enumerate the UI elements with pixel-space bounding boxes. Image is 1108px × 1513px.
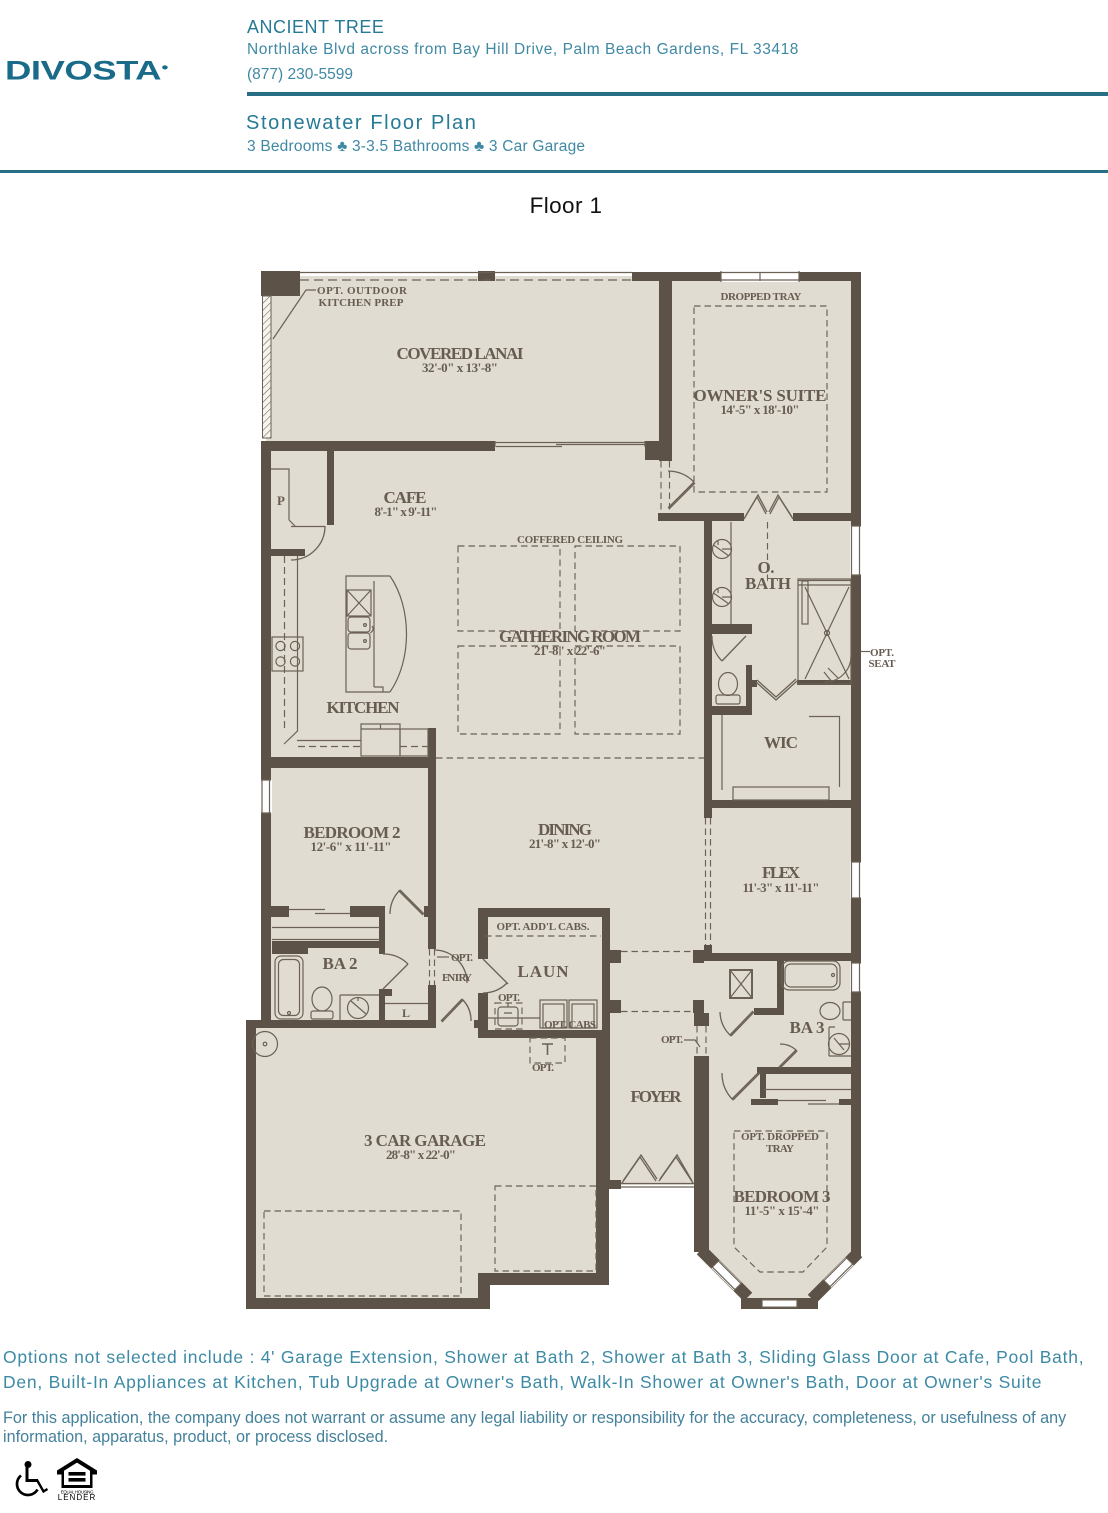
svg-text:FOYER: FOYER: [631, 1087, 683, 1106]
svg-text:21'-8" x 22'-6": 21'-8" x 22'-6": [534, 643, 606, 658]
svg-text:LENDER: LENDER: [58, 1493, 96, 1501]
svg-text:OPT. CABS: OPT. CABS: [544, 1019, 596, 1031]
svg-text:P: P: [277, 493, 285, 508]
svg-text:WIC: WIC: [764, 733, 798, 752]
svg-text:L: L: [402, 1006, 410, 1020]
svg-text:DROPPED TRAY: DROPPED TRAY: [721, 291, 802, 303]
svg-text:21'-8" x 12'-0": 21'-8" x 12'-0": [529, 836, 601, 851]
svg-text:11'-3" x 11'-11": 11'-3" x 11'-11": [743, 880, 820, 895]
svg-text:ENTRY: ENTRY: [442, 972, 472, 984]
svg-text:COFFERED CEILING: COFFERED CEILING: [517, 534, 623, 546]
svg-text:12'-6" x 11'-11": 12'-6" x 11'-11": [311, 839, 392, 854]
svg-text:LAUN: LAUN: [518, 962, 570, 981]
svg-text:BATH: BATH: [745, 574, 791, 593]
svg-text:OPT.: OPT.: [661, 1034, 683, 1046]
svg-text:KITCHEN: KITCHEN: [327, 698, 401, 717]
svg-text:BA 2: BA 2: [323, 954, 358, 973]
svg-text:KITCHEN PREP: KITCHEN PREP: [319, 297, 404, 309]
svg-text:SEAT: SEAT: [869, 658, 897, 670]
svg-text:OPT.: OPT.: [532, 1062, 554, 1074]
svg-text:BA 3: BA 3: [790, 1018, 825, 1037]
svg-text:11'-5" x 15'-4": 11'-5" x 15'-4": [745, 1203, 820, 1218]
svg-text:32'-0" x 13'-8": 32'-0" x 13'-8": [422, 360, 498, 375]
svg-text:TRAY: TRAY: [766, 1143, 794, 1155]
svg-text:8'-1" x 9'-11": 8'-1" x 9'-11": [375, 504, 438, 519]
svg-text:OPT. OUTDOOR: OPT. OUTDOOR: [317, 285, 408, 297]
svg-text:28'-8" x 22'-0": 28'-8" x 22'-0": [386, 1147, 456, 1162]
svg-text:OPT. ADD'L CABS.: OPT. ADD'L CABS.: [497, 921, 590, 933]
svg-text:OPT.: OPT.: [451, 952, 473, 964]
svg-text:14'-5" x 18'-10": 14'-5" x 18'-10": [721, 402, 800, 417]
svg-text:OPT. DROPPED: OPT. DROPPED: [741, 1131, 819, 1143]
svg-text:OPT.: OPT.: [498, 992, 520, 1004]
